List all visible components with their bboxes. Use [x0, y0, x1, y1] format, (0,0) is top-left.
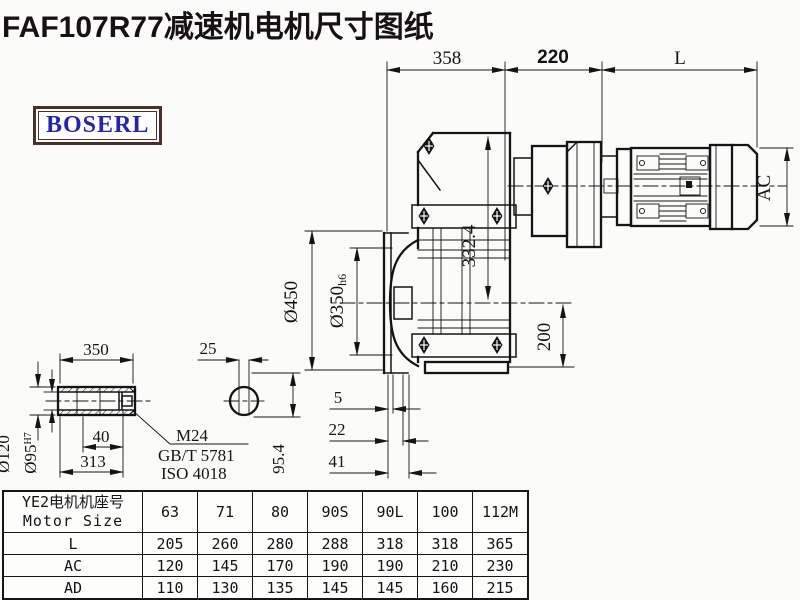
flange-face-dims: 5 22 41 — [329, 375, 437, 478]
cell: 210 — [418, 555, 473, 577]
breather-plug-icon — [424, 137, 435, 155]
dim-358: 358 — [433, 48, 462, 69]
cell: 365 — [473, 533, 529, 555]
cell: 145 — [198, 555, 253, 577]
col-header: 112M — [473, 491, 529, 533]
bolt-std2-label: ISO 4018 — [161, 464, 227, 483]
dim-L: L — [674, 48, 686, 69]
cell: 190 — [308, 555, 363, 577]
dim-350: 350 — [83, 340, 109, 359]
table-corner-header: YE2电机机座号 Motor Size — [3, 491, 143, 533]
dim-200: 200 — [534, 323, 555, 352]
motor-size-table: YE2电机机座号 Motor Size 63 71 80 90S 90L 100… — [2, 490, 529, 600]
plug-icon — [492, 207, 503, 225]
dim-22: 22 — [329, 420, 346, 439]
dim-ac-group: AC — [754, 148, 793, 226]
col-header: 90L — [363, 491, 418, 533]
header-cn: YE2电机机座号 — [4, 493, 142, 512]
dim-200-group: 200 — [508, 305, 574, 367]
boserl-logo-text: BOSERL — [38, 111, 157, 140]
dim-AC: AC — [754, 175, 775, 201]
dim-41: 41 — [329, 452, 346, 471]
cell: 190 — [363, 555, 418, 577]
dim-5: 5 — [334, 388, 343, 407]
flange-diameter-dims: Ø450 Ø350h6 — [281, 231, 392, 370]
dim-220: 220 — [537, 47, 569, 68]
table-row: L 205 260 280 288 318 318 365 — [3, 533, 528, 555]
row-label: L — [3, 533, 143, 555]
cell: 120 — [143, 555, 198, 577]
table-header-row: YE2电机机座号 Motor Size 63 71 80 90S 90L 100… — [3, 491, 528, 533]
col-header: 63 — [143, 491, 198, 533]
table-row: AC 120 145 170 190 190 210 230 — [3, 555, 528, 577]
header-en: Motor Size — [4, 512, 142, 531]
plug-icon — [419, 207, 430, 225]
dim-shaft-bore: Ø95H7 — [21, 432, 40, 474]
bolt-spec-label: M24 — [176, 426, 209, 445]
fan-cover-band — [710, 145, 732, 229]
cell: 170 — [253, 555, 308, 577]
col-header: 90S — [308, 491, 363, 533]
dim-25: 25 — [200, 339, 217, 358]
dim-332: 332.4 — [459, 224, 480, 267]
plug-icon — [543, 177, 554, 195]
cell: 260 — [198, 533, 253, 555]
col-header: 100 — [418, 491, 473, 533]
dim-40: 40 — [93, 427, 110, 446]
dim-shaft-od: Ø120 — [0, 435, 13, 473]
dim-flange-od: Ø450 — [281, 281, 302, 323]
dim-313: 313 — [80, 452, 106, 471]
cell: 205 — [143, 533, 198, 555]
cell: 230 — [473, 555, 529, 577]
boserl-logo: BOSERL — [33, 106, 162, 145]
plug-icon — [419, 336, 430, 354]
row-label: AC — [3, 555, 143, 577]
motor — [617, 145, 757, 229]
cell: 318 — [363, 533, 418, 555]
cell: 318 — [418, 533, 473, 555]
bolt-std1-label: GB/T 5781 — [158, 446, 235, 465]
cell: 280 — [253, 533, 308, 555]
col-header: 71 — [198, 491, 253, 533]
dim-flange-spigot: Ø350h6 — [327, 274, 349, 328]
page-title: FAF107R77减速机电机尺寸图纸 — [2, 2, 434, 46]
hollow-shaft-detail: 350 Ø120 Ø95H7 40 313 M24 GB/T 5781 ISO … — [0, 340, 248, 483]
cell: 288 — [308, 533, 363, 555]
col-header: 80 — [253, 491, 308, 533]
dim-954: 95.4 — [269, 444, 288, 474]
plug-icon — [492, 336, 503, 354]
dim-332-group: 332.4 — [459, 137, 488, 299]
